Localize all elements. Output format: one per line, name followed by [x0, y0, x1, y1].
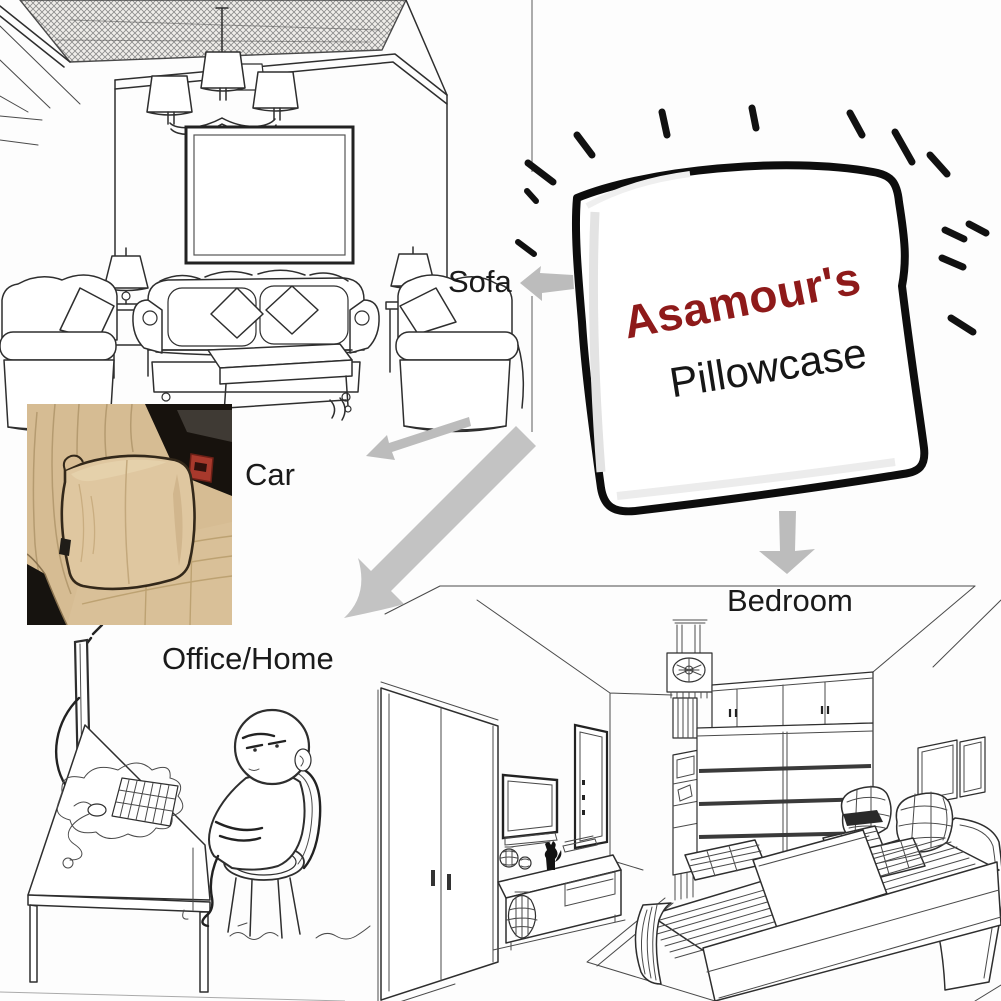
car-label: Car: [245, 459, 295, 490]
sofa-label: Sofa: [448, 266, 512, 297]
arrow-left-to-sofa-icon: [520, 266, 574, 301]
product-usage-diagram: Asamour's Pillowcase Sofa Car Office/Hom…: [0, 0, 1001, 1001]
arrow-to-car-icon: [366, 417, 471, 460]
bedroom-label: Bedroom: [727, 585, 853, 616]
office-label: Office/Home: [162, 643, 334, 674]
arrows-overlay: [0, 0, 1001, 1001]
arrow-down-to-bedroom-icon: [759, 511, 815, 574]
